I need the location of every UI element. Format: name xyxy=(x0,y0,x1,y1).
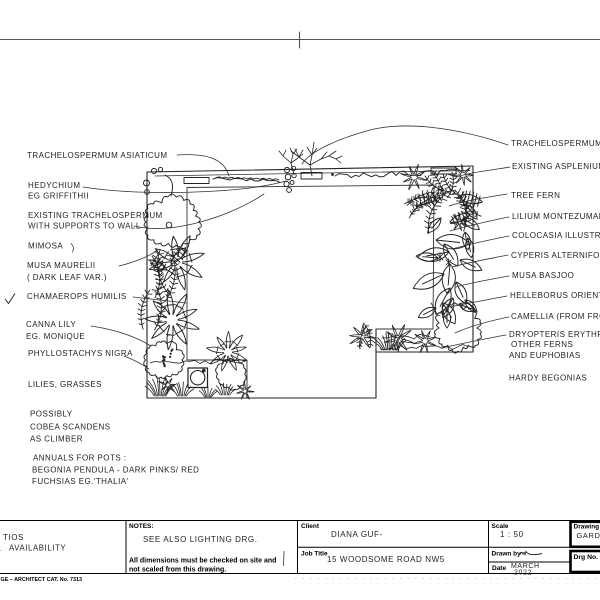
svg-text:Date: Date xyxy=(492,565,506,572)
svg-text:TRACHELOSPERMUM ASIATICUM: TRACHELOSPERMUM ASIATICUM xyxy=(27,151,167,160)
svg-text:AS CLIMBER: AS CLIMBER xyxy=(30,435,83,444)
svg-text:EG. MONIQUE: EG. MONIQUE xyxy=(26,332,85,341)
svg-text:MUSA BASJOO: MUSA BASJOO xyxy=(512,271,574,280)
svg-text:MIMOSA: MIMOSA xyxy=(28,242,63,251)
svg-text:BEGONIA PENDULA - DARK PINKS/: BEGONIA PENDULA - DARK PINKS/ RED xyxy=(32,466,199,475)
svg-text:HARDY BEGONIAS: HARDY BEGONIAS xyxy=(509,374,587,383)
svg-text:EXISTING TRACHELOSPERMUM: EXISTING TRACHELOSPERMUM xyxy=(28,211,163,220)
svg-text:WITH SUPPORTS TO WALL: WITH SUPPORTS TO WALL xyxy=(28,222,141,231)
svg-text:Drg No.: Drg No. xyxy=(574,554,599,561)
svg-text:PHYLLOSTACHYS NIGRA: PHYLLOSTACHYS NIGRA xyxy=(28,349,133,358)
svg-text:Job Title: Job Title xyxy=(301,551,328,558)
svg-text:NOTES:: NOTES: xyxy=(129,523,154,530)
svg-text:CYPERIS ALTERNIFOLIUS: CYPERIS ALTERNIFOLIUS xyxy=(511,251,600,260)
svg-text:FUCHSIAS EG.'THALIA': FUCHSIAS EG.'THALIA' xyxy=(32,477,129,486)
svg-text:1 : 50: 1 : 50 xyxy=(500,530,524,539)
svg-text:TIOS: TIOS xyxy=(3,533,24,542)
svg-text:GARD: GARD xyxy=(577,531,600,540)
svg-text:1: 1 xyxy=(0,544,2,553)
svg-text:EG GRIFFITHII: EG GRIFFITHII xyxy=(28,192,89,201)
svg-text:LILIUM MONTEZUMAE: LILIUM MONTEZUMAE xyxy=(512,212,600,221)
svg-text:CAMELLIA (FROM FRONT: CAMELLIA (FROM FRONT xyxy=(511,312,600,321)
svg-text:All dimensions must be checked: All dimensions must be checked on site a… xyxy=(129,558,276,565)
svg-text:TRACHELOSPERMUM: TRACHELOSPERMUM xyxy=(511,139,600,148)
svg-text:HEDYCHIUM: HEDYCHIUM xyxy=(28,181,81,190)
svg-text:DIANA GUF-: DIANA GUF- xyxy=(331,530,383,539)
svg-text:CANNA LILY: CANNA LILY xyxy=(26,320,76,329)
svg-text:ANNUALS FOR POTS :: ANNUALS FOR POTS : xyxy=(33,454,126,463)
svg-text:COLOCASIA ILLUSTRIS: COLOCASIA ILLUSTRIS xyxy=(512,231,600,240)
svg-text:2022: 2022 xyxy=(514,570,532,577)
svg-text:CHAMAEROPS HUMILIS: CHAMAEROPS HUMILIS xyxy=(27,292,127,301)
svg-text:( DARK LEAF VAR.): ( DARK LEAF VAR.) xyxy=(27,273,107,282)
svg-text:OTHER FERNS: OTHER FERNS xyxy=(511,340,573,349)
svg-text:Drawing: Drawing xyxy=(574,524,600,531)
svg-text:15 WOODSOME ROAD NW5: 15 WOODSOME ROAD NW5 xyxy=(327,555,445,564)
svg-text:HELLEBORUS ORIENTALIS: HELLEBORUS ORIENTALIS xyxy=(510,291,600,300)
svg-text:SEE ALSO LIGHTING DRG.: SEE ALSO LIGHTING DRG. xyxy=(143,535,258,544)
svg-text:not scaled from this drawing.: not scaled from this drawing. xyxy=(129,567,226,574)
svg-text:Scale: Scale xyxy=(492,523,509,530)
svg-text:POSSIBLY: POSSIBLY xyxy=(30,410,73,419)
svg-text:AND EUPHOBIAS: AND EUPHOBIAS xyxy=(509,351,581,360)
svg-text:TREE FERN: TREE FERN xyxy=(511,191,560,200)
svg-text:Client: Client xyxy=(301,523,320,530)
svg-text:DRYOPTERIS ERYTHROSORA: DRYOPTERIS ERYTHROSORA xyxy=(509,330,600,339)
svg-text:LILIES, GRASSES: LILIES, GRASSES xyxy=(28,380,102,389)
svg-text:EXISTING ASPLENIUM: EXISTING ASPLENIUM xyxy=(512,162,600,171)
svg-text:GE – ARCHITECT CAT. No. 7313: GE – ARCHITECT CAT. No. 7313 xyxy=(1,577,82,583)
svg-text:AVAILABILITY: AVAILABILITY xyxy=(9,544,66,553)
svg-text:Drawn by: Drawn by xyxy=(492,551,522,558)
svg-text:COBEA SCANDENS: COBEA SCANDENS xyxy=(30,423,111,432)
svg-text:MUSA MAURELII: MUSA MAURELII xyxy=(27,261,96,270)
